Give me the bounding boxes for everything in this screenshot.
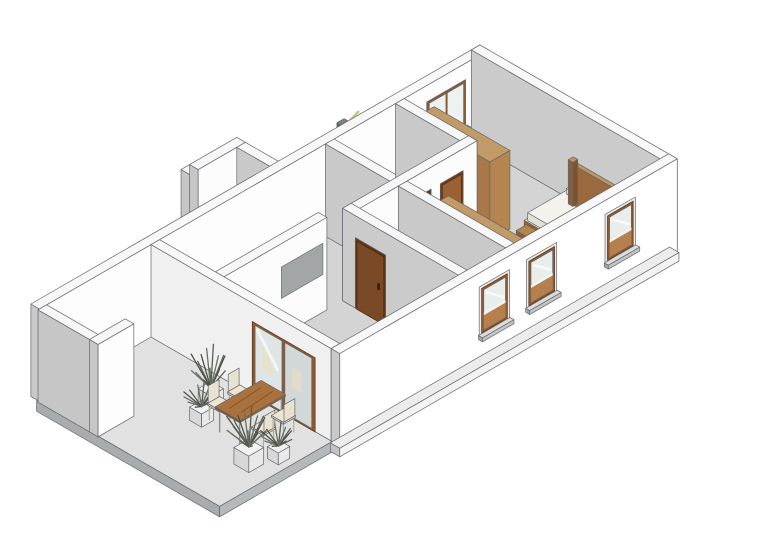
bed-post-1 — [568, 157, 577, 207]
isometric-apartment-rendering — [0, 0, 768, 560]
3d-view-canvas: Architectural 3D isometric cutaway rende… — [0, 0, 768, 560]
terrace-wall-return — [90, 319, 134, 437]
